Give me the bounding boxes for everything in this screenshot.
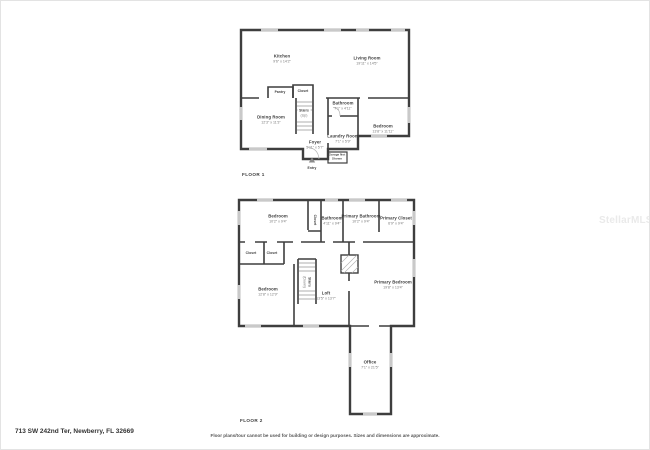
room-label-loft: Loft 13'5" x 13'7" bbox=[316, 291, 336, 302]
room-label-closet-b: Closet bbox=[267, 251, 278, 255]
floor2-tag: FLOOR 2 bbox=[240, 418, 263, 423]
room-label-pantry: Pantry bbox=[275, 90, 286, 94]
floor2-exterior-walls bbox=[239, 200, 414, 414]
floor1-plan bbox=[239, 27, 411, 175]
room-label-primary-bedroom: Primary Bedroom 19'8" x 13'4" bbox=[374, 280, 412, 291]
room-label-bathroom-f2: Bathroom 4'11" x 9'4" bbox=[321, 216, 342, 227]
room-label-closet-f1: Closet bbox=[298, 89, 309, 93]
room-label-bathroom-f1: Bathroom 7'1" x 4'11" bbox=[332, 101, 353, 112]
stellar-mls-watermark: StellarMLS bbox=[599, 215, 650, 226]
room-label-stairs-up: Stairs (Up) bbox=[298, 108, 311, 117]
room-label-living-room: Living Room 19'11" x 14'5" bbox=[353, 56, 380, 67]
room-label-foyer: Foyer 5'11" x 5'7" bbox=[306, 140, 323, 151]
room-label-entry: Entry bbox=[308, 166, 317, 170]
room-label-primary-bathroom: Primary Bathroom 10'2" x 9'4" bbox=[341, 214, 380, 225]
floorplan-page: Kitchen 9'6" x 14'2" Living Room 19'11" … bbox=[0, 0, 650, 450]
room-label-closet-hall: Closet bbox=[313, 215, 317, 226]
room-label-bedroom-f1: Bedroom 13'8" x 11'11" bbox=[372, 124, 393, 135]
room-label-dining-room: Dining Room 12'3" x 11'3" bbox=[257, 115, 285, 126]
room-label-kitchen: Kitchen 9'6" x 14'2" bbox=[273, 54, 291, 65]
room-label-laundry-room: Laundry Room 7'1" x 5'9" bbox=[327, 134, 359, 145]
room-label-stairs-down: Stairs (Down) bbox=[302, 275, 311, 290]
room-label-bedroom2-upper: Bedroom 10'2" x 9'4" bbox=[268, 214, 288, 225]
room-label-bedroom2-lower: Bedroom 12'8" x 12'9" bbox=[258, 287, 278, 298]
floor2-plan bbox=[237, 197, 416, 417]
floor2-hatch-box bbox=[341, 255, 358, 273]
room-label-primary-closet: Primary Closet 6'9" x 9'4" bbox=[380, 216, 412, 227]
floor1-tag: FLOOR 1 bbox=[242, 172, 265, 177]
room-label-garage-not-shown: Garage Not Shown bbox=[329, 153, 346, 160]
room-label-closet-a: Closet bbox=[246, 251, 257, 255]
floor1-exterior-walls bbox=[241, 30, 409, 159]
floor2-windows bbox=[239, 200, 414, 414]
room-label-office: Office 7'1" x 21'5" bbox=[361, 360, 379, 371]
disclaimer-text: Floor plans/tour cannot be used for buil… bbox=[1, 433, 649, 438]
